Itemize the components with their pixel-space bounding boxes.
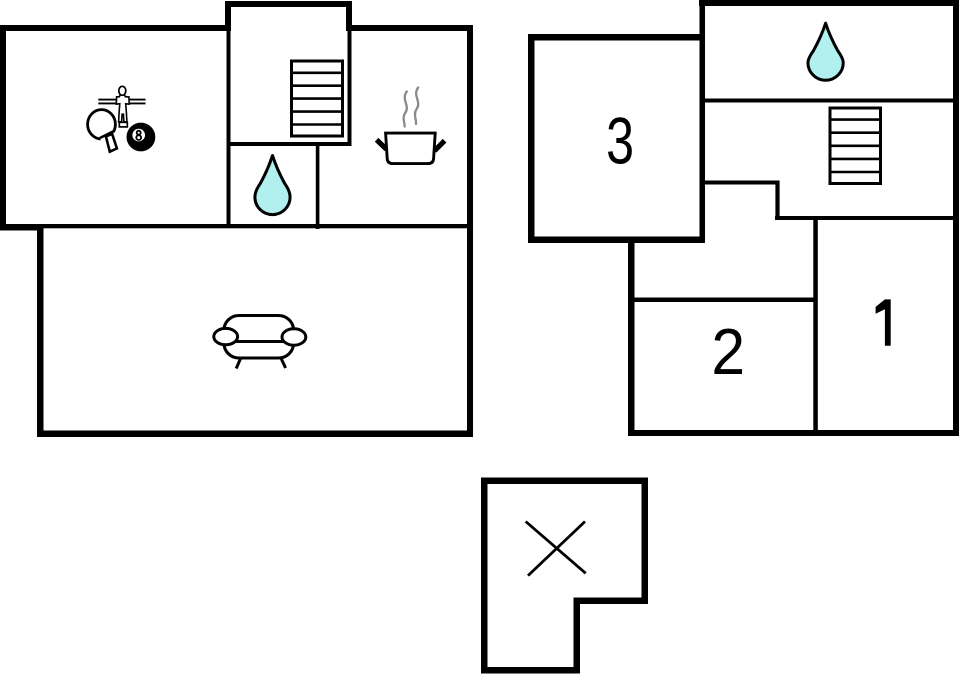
svg-text:2: 2 xyxy=(711,316,745,388)
svg-text:3: 3 xyxy=(606,105,634,178)
